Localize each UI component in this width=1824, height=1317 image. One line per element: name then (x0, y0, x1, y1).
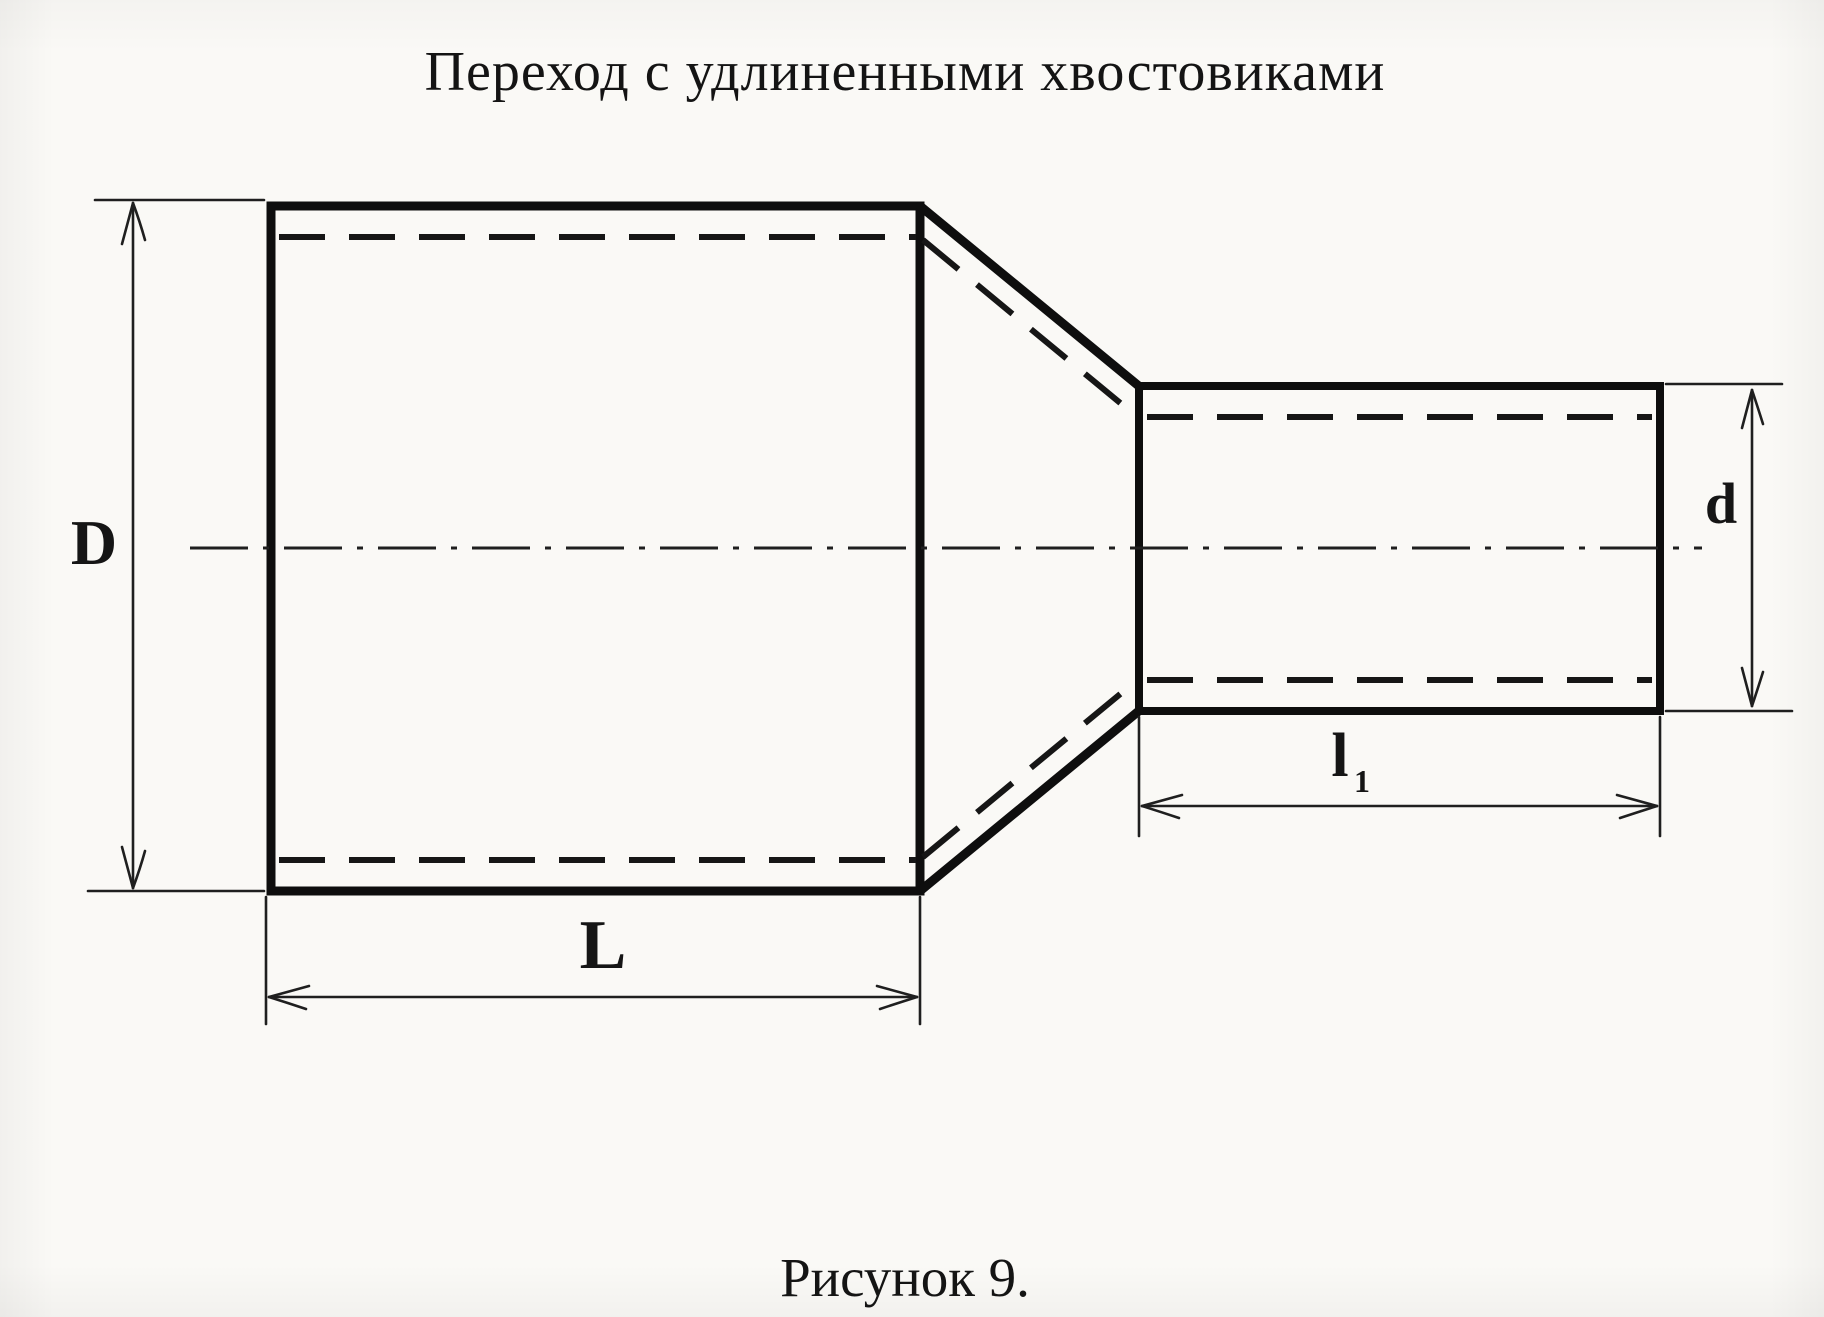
label-L: L (580, 907, 627, 984)
dimension-l1: l 1 (1139, 717, 1660, 836)
figure-caption: Рисунок 9. (0, 1246, 1810, 1309)
dimension-D: D (71, 200, 264, 891)
dimension-d: d (1666, 384, 1792, 711)
cone-inner-wall-top (923, 240, 1136, 416)
label-d: d (1705, 471, 1737, 536)
scanned-drawing-page: Переход с удлиненными хвостовиками (0, 0, 1824, 1317)
cone-slant-bottom (920, 710, 1140, 891)
reducer-drawing-svg: D d L l 1 (0, 0, 1824, 1317)
cone-slant-top (920, 206, 1140, 387)
cone-inner-wall-bottom (923, 681, 1136, 857)
dimension-L: L (266, 897, 920, 1024)
label-D: D (71, 507, 117, 578)
label-l1-subscript: 1 (1354, 763, 1370, 799)
label-l1-base: l (1331, 722, 1348, 790)
